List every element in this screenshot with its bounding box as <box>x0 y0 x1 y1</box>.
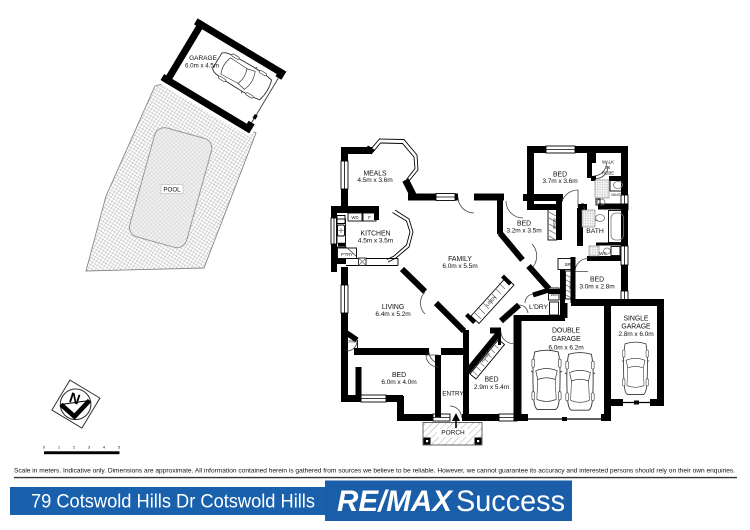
svg-text:BED: BED <box>590 277 604 284</box>
svg-text:3: 3 <box>88 445 91 450</box>
svg-text:ROBE: ROBE <box>602 171 614 176</box>
svg-text:ENTRY: ENTRY <box>442 391 464 398</box>
svg-text:DOUBLE: DOUBLE <box>552 328 580 335</box>
svg-text:BATH: BATH <box>586 228 604 235</box>
svg-text:F: F <box>368 215 371 220</box>
svg-text:KITCHEN: KITCHEN <box>361 231 391 238</box>
svg-text:POOL: POOL <box>163 187 181 194</box>
svg-text:LIVING: LIVING <box>382 304 404 311</box>
svg-text:6.0m x 5.5m: 6.0m x 5.5m <box>442 263 478 270</box>
svg-text:SINGLE: SINGLE <box>624 316 649 323</box>
svg-text:P'TRY: P'TRY <box>341 252 353 257</box>
svg-text:6.0m x 4.0m: 6.0m x 4.0m <box>381 379 417 386</box>
svg-text:ROBE: ROBE <box>344 339 355 344</box>
svg-text:GARAGE: GARAGE <box>551 336 581 343</box>
svg-text:WD: WD <box>351 215 358 220</box>
svg-text:GARAGE: GARAGE <box>189 55 217 62</box>
svg-text:BR: BR <box>565 262 571 267</box>
svg-text:ROBE: ROBE <box>552 218 557 230</box>
svg-text:4.5m x 3.5m: 4.5m x 3.5m <box>358 238 394 245</box>
svg-text:4.5m x 3.6m: 4.5m x 3.6m <box>357 177 393 184</box>
svg-text:BED: BED <box>392 372 406 379</box>
svg-text:79 Cotswold Hills Dr Cotswold: 79 Cotswold Hills Dr Cotswold Hills <box>31 492 315 513</box>
svg-text:6.0m x 4.5m: 6.0m x 4.5m <box>185 63 219 70</box>
svg-text:BED: BED <box>484 377 498 384</box>
svg-text:2: 2 <box>73 445 76 450</box>
svg-text:0: 0 <box>43 445 46 450</box>
svg-text:RE/MAX: RE/MAX <box>337 485 454 518</box>
svg-text:VANITY: VANITY <box>611 193 624 197</box>
svg-text:4: 4 <box>103 445 106 450</box>
svg-text:FAMILY: FAMILY <box>448 256 472 263</box>
svg-text:GARAGE: GARAGE <box>621 324 651 331</box>
svg-text:WC: WC <box>599 251 607 256</box>
svg-text:PORCH: PORCH <box>441 430 465 437</box>
svg-text:Success: Success <box>456 485 565 518</box>
svg-text:L'DRY: L'DRY <box>529 304 549 311</box>
svg-text:3.2m x 3.5m: 3.2m x 3.5m <box>506 228 542 235</box>
svg-text:1: 1 <box>58 445 61 450</box>
svg-text:3.0m x 2.8m: 3.0m x 2.8m <box>579 284 615 291</box>
svg-text:5: 5 <box>118 445 121 450</box>
svg-text:2.8m x 6.0m: 2.8m x 6.0m <box>618 331 654 338</box>
svg-text:Scale in meters. Indicative on: Scale in meters. Indicative only. Dimens… <box>14 468 735 475</box>
svg-text:2.9m x 5.4m: 2.9m x 5.4m <box>474 384 510 391</box>
svg-text:3.7m x 3.6m: 3.7m x 3.6m <box>542 178 578 185</box>
svg-text:IN: IN <box>606 165 610 170</box>
svg-text:6.0m x 6.2m: 6.0m x 6.2m <box>548 345 584 352</box>
svg-text:WALK: WALK <box>602 160 614 165</box>
svg-text:6.4m x 5.2m: 6.4m x 5.2m <box>375 311 411 318</box>
svg-text:WM: WM <box>550 292 557 297</box>
svg-text:BED: BED <box>517 221 531 228</box>
